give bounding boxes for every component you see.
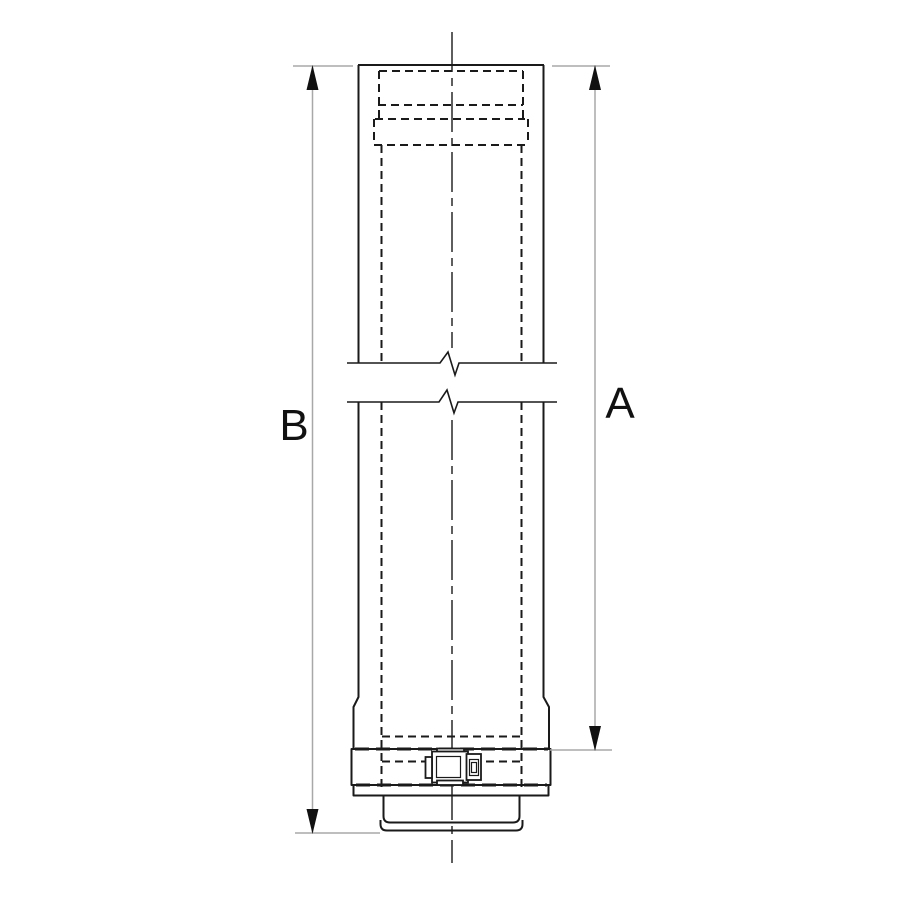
gasket-collar-side-hidden-edges (374, 119, 528, 145)
arrow-up-icon (589, 65, 601, 90)
clamp-latch (426, 749, 482, 786)
locking-band-flange (354, 785, 549, 796)
clamp-body-inner-edge (437, 757, 461, 778)
dimension-b: B (279, 65, 380, 834)
pipe-section-drawing: B A (0, 0, 900, 900)
dimension-label-b: B (279, 401, 308, 450)
dimension-a: A (550, 65, 635, 751)
arrow-down-icon (307, 809, 319, 834)
pipe-right-wall-lower (544, 402, 550, 749)
spigot-side-hidden-edges (379, 71, 523, 119)
clamp-right-pin (472, 763, 477, 773)
clamp-left-bracket (426, 757, 433, 778)
arrow-down-icon (589, 726, 601, 751)
dimension-label-a: A (605, 379, 635, 428)
break-line-lower (347, 390, 557, 413)
break-line-upper (347, 352, 557, 375)
technical-drawing-canvas: B A (0, 0, 900, 900)
break-symbol (347, 352, 557, 413)
pipe-left-wall-lower (354, 402, 359, 749)
arrow-up-icon (307, 65, 319, 90)
clamp-bottom-tab (437, 781, 463, 786)
